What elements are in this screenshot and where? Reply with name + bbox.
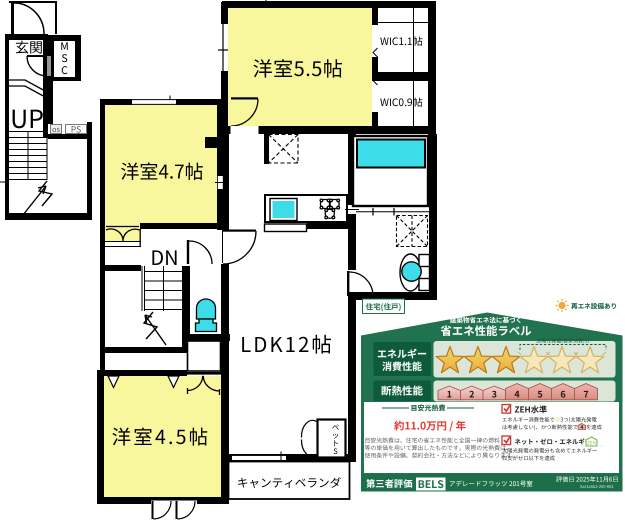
svg-text:…: … <box>599 441 604 448</box>
svg-text:3: 3 <box>492 388 497 401</box>
svg-text:を達成: を達成 <box>586 423 603 431</box>
svg-text:収支がゼロ以下を達成: 収支がゼロ以下を達成 <box>502 454 556 462</box>
svg-text:C: C <box>61 63 68 78</box>
svg-text:使用条件や設備、契約会社・方法などにより異なります。: 使用条件や設備、契約会社・方法などにより異なります。 <box>365 451 518 460</box>
svg-text:洋室4.5帖: 洋室4.5帖 <box>112 421 211 450</box>
svg-text:キャンティベランダ: キャンティベランダ <box>237 475 342 491</box>
svg-text:玄関: 玄関 <box>15 38 43 58</box>
svg-text:目安光熱費: 目安光熱費 <box>411 404 446 414</box>
svg-text:省エネ性能ラベル: 省エネ性能ラベル <box>440 323 532 339</box>
svg-text:洋室4.7帖: 洋室4.7帖 <box>120 158 203 185</box>
svg-text:ネット・ゼロ・エネルギー: ネット・ゼロ・エネルギー <box>515 437 592 446</box>
svg-text:S: S <box>333 446 338 457</box>
svg-text:は考慮しない)、かつ断熱性能で: は考慮しない)、かつ断熱性能で <box>502 423 578 431</box>
svg-text:2: 2 <box>469 388 474 401</box>
svg-text:約11.0万円 / 年: 約11.0万円 / 年 <box>394 418 466 433</box>
svg-text:断熱性能: 断熱性能 <box>381 384 423 399</box>
svg-text:7: 7 <box>583 388 588 401</box>
svg-text:4: 4 <box>580 424 583 431</box>
svg-text:住宅(住戸): 住宅(住戸) <box>366 301 402 312</box>
svg-text:4: 4 <box>514 388 520 401</box>
svg-text:アデレードフラッツ 201号室: アデレードフラッツ 201号室 <box>449 478 533 488</box>
svg-text:6: 6 <box>560 388 565 401</box>
svg-text:LDK12帖: LDK12帖 <box>240 328 334 358</box>
svg-text:BELS: BELS <box>418 477 445 492</box>
svg-text:UP: UP <box>10 100 44 136</box>
svg-text:評価日 2025年11月6日: 評価日 2025年11月6日 <box>556 475 619 484</box>
svg-text:ZEH水準: ZEH水準 <box>515 404 548 416</box>
svg-text:太陽光発電(自家消費)分: 太陽光発電(自家消費)分 <box>536 338 589 345</box>
svg-text:WIC0.9帖: WIC0.9帖 <box>380 94 423 109</box>
svg-text:1: 1 <box>447 388 452 401</box>
svg-text:Sa1taSk2-200-R61: Sa1taSk2-200-R61 <box>580 484 614 490</box>
svg-text:再エネ設備あり: 再エネ設備あり <box>571 301 617 311</box>
svg-text:WIC1.1帖: WIC1.1帖 <box>380 33 423 48</box>
svg-text:洋室5.5帖: 洋室5.5帖 <box>253 53 344 82</box>
svg-text:5: 5 <box>537 388 542 401</box>
svg-text:PS: PS <box>71 124 81 136</box>
svg-text:DN: DN <box>150 242 178 271</box>
svg-text:os: os <box>52 124 61 135</box>
svg-text:消費性能: 消費性能 <box>382 358 422 373</box>
svg-text:第三者評価: 第三者評価 <box>366 476 413 490</box>
